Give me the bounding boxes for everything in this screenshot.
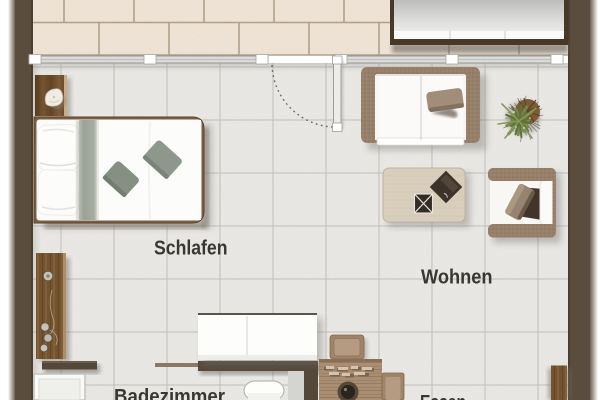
svg-text:Badezimmer: Badezimmer: [114, 385, 225, 400]
svg-text:Wohnen: Wohnen: [421, 266, 493, 289]
svg-text:Essen: Essen: [420, 391, 466, 400]
svg-text:Schlafen: Schlafen: [154, 237, 228, 260]
